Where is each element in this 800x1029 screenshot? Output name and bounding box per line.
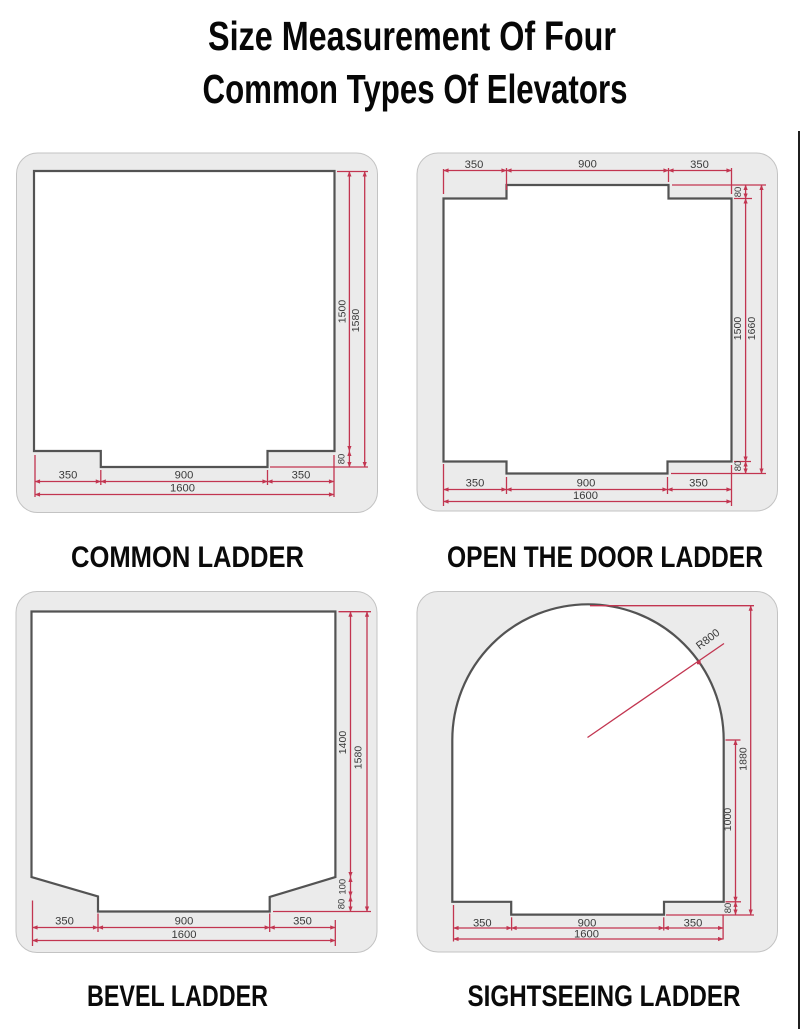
svg-text:1600: 1600 <box>170 483 195 495</box>
svg-text:350: 350 <box>473 917 492 929</box>
svg-text:Size Measurement Of Four: Size Measurement Of Four <box>208 13 616 59</box>
svg-text:350: 350 <box>465 159 484 171</box>
svg-text:900: 900 <box>175 470 194 482</box>
svg-text:350: 350 <box>684 917 703 929</box>
svg-text:1400: 1400 <box>337 731 349 755</box>
svg-text:1500: 1500 <box>337 300 349 324</box>
svg-text:BEVEL LADDER: BEVEL LADDER <box>87 980 268 1013</box>
svg-text:1000: 1000 <box>722 808 734 832</box>
svg-text:OPEN THE DOOR LADDER: OPEN THE DOOR LADDER <box>447 541 763 574</box>
svg-text:1500: 1500 <box>732 317 744 341</box>
svg-text:1600: 1600 <box>172 929 197 941</box>
svg-text:1580: 1580 <box>353 746 365 770</box>
svg-text:1580: 1580 <box>350 309 362 333</box>
svg-text:80: 80 <box>733 461 744 472</box>
svg-text:80: 80 <box>337 899 348 910</box>
svg-text:350: 350 <box>292 470 311 482</box>
svg-text:350: 350 <box>55 916 74 928</box>
svg-text:80: 80 <box>337 454 348 465</box>
svg-text:1600: 1600 <box>573 490 598 502</box>
svg-text:80: 80 <box>733 187 744 198</box>
svg-text:80: 80 <box>723 903 734 914</box>
svg-text:COMMON LADDER: COMMON LADDER <box>71 541 304 574</box>
svg-text:350: 350 <box>689 478 708 490</box>
svg-text:1600: 1600 <box>574 928 599 940</box>
svg-text:1880: 1880 <box>738 747 750 771</box>
svg-text:1660: 1660 <box>746 317 758 341</box>
svg-text:350: 350 <box>293 916 312 928</box>
svg-text:350: 350 <box>466 478 485 490</box>
svg-text:Common Types Of Elevators: Common Types Of Elevators <box>203 66 628 112</box>
svg-text:900: 900 <box>175 916 194 928</box>
svg-text:350: 350 <box>59 470 78 482</box>
svg-text:SIGHTSEEING LADDER: SIGHTSEEING LADDER <box>468 980 741 1013</box>
svg-text:900: 900 <box>577 478 596 490</box>
svg-text:100: 100 <box>338 879 349 895</box>
svg-text:900: 900 <box>578 159 597 171</box>
svg-text:350: 350 <box>690 159 709 171</box>
